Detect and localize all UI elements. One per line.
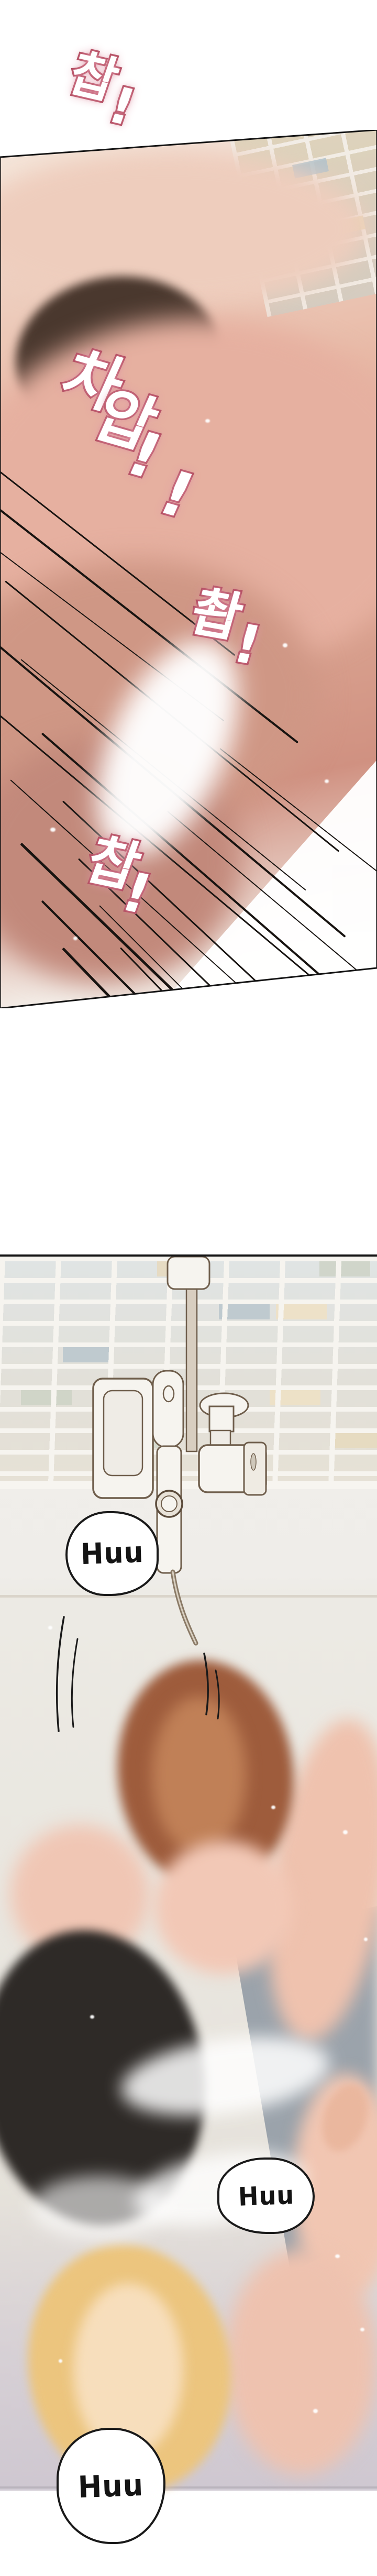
water-droplet <box>313 2409 318 2413</box>
motion-arcs <box>0 1571 377 2095</box>
speech-bubble-text: Huu <box>77 2467 144 2504</box>
motion-arc <box>72 1639 77 1727</box>
water-droplet <box>335 2254 340 2258</box>
mixer-arm <box>209 1406 234 1432</box>
speech-bubble-3: Huu <box>57 2428 165 2544</box>
mixer-nut <box>210 1430 230 1445</box>
water-droplet <box>90 2015 94 2019</box>
water-droplet <box>325 779 329 783</box>
wall-cylinder <box>153 1371 183 1447</box>
water-droplet <box>59 2359 62 2363</box>
water-droplet <box>205 419 210 423</box>
speech-bubble-text: Huu <box>238 2180 295 2212</box>
webtoon-page: 찹! 차압!! 촵! 찹! <box>0 0 377 2576</box>
water-droplet <box>50 828 56 832</box>
sfx-text-1: 찹! <box>45 48 124 158</box>
water-droplet <box>48 1626 52 1630</box>
water-droplet <box>271 1806 275 1809</box>
panel-2-bathroom: Huu Huu Huu <box>0 1254 377 2489</box>
hand-shower-head-inner <box>161 1496 177 1512</box>
speed-line <box>167 811 377 1000</box>
speed-line <box>219 748 377 904</box>
motion-arc <box>204 1654 208 1714</box>
panel-1-closeup <box>0 130 377 1008</box>
speed-lines <box>0 130 377 1008</box>
shelf-inner <box>104 1391 142 1476</box>
water-droplet <box>343 1830 348 1834</box>
motion-arc <box>216 1670 219 1719</box>
motion-arc <box>57 1617 64 1731</box>
speech-bubble-2: Huu <box>217 2157 315 2234</box>
speech-bubble-1: Huu <box>65 1511 159 1596</box>
speed-line <box>120 947 310 1008</box>
cap-slot <box>251 1454 256 1470</box>
water-droplet <box>360 2328 364 2331</box>
steam-wisp <box>31 2176 168 2239</box>
skin-blob <box>225 2249 377 2474</box>
speech-bubble-text: Huu <box>80 1536 145 1571</box>
rail-top-mount <box>168 1257 209 1289</box>
water-droplet <box>364 1937 368 1941</box>
